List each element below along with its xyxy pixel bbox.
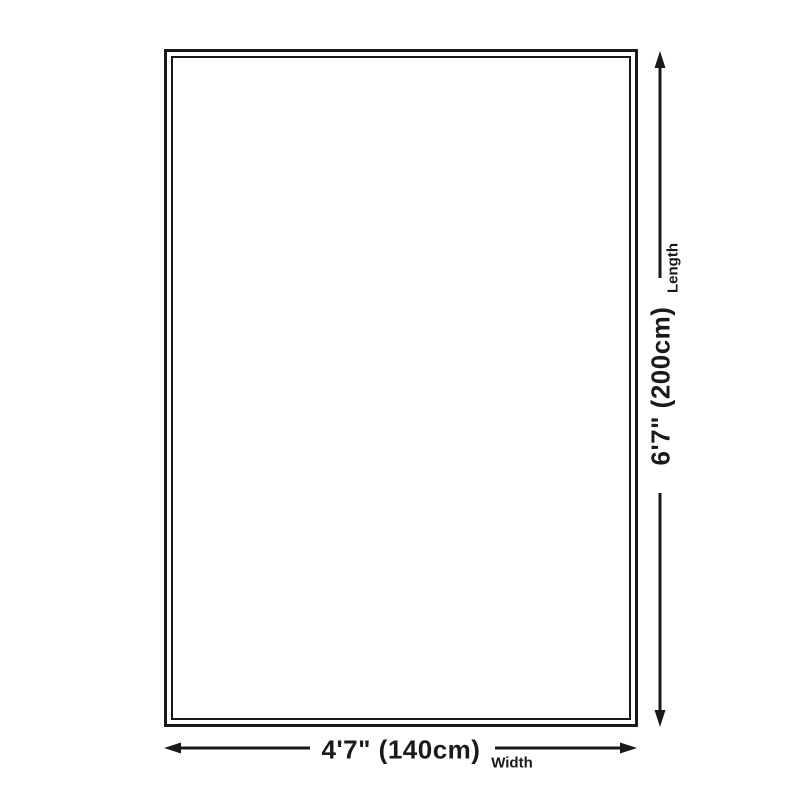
dimension-arrows — [0, 0, 800, 800]
rug-dimension-diagram: 6'7" (200cm) Length 4'7" (140cm) Width — [0, 0, 800, 800]
length-arrow-down-head — [655, 710, 666, 727]
width-dimension-label: Width — [491, 755, 533, 772]
width-arrow-right-head — [620, 743, 637, 754]
length-arrow-up-head — [655, 51, 666, 68]
length-dimension-label: Length — [665, 243, 682, 293]
width-dimension-value: 4'7" (140cm) — [322, 735, 481, 766]
length-dimension-value: 6'7" (200cm) — [646, 307, 677, 466]
width-arrow-left-head — [164, 743, 181, 754]
